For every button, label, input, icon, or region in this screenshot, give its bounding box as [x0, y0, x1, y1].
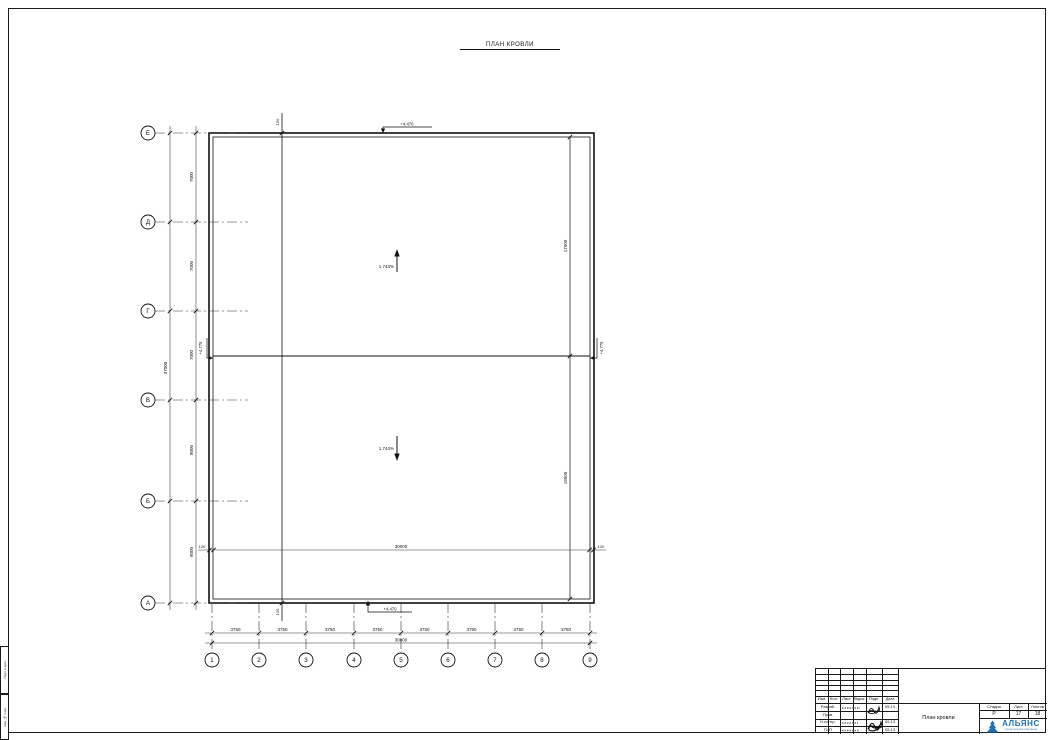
- elevation-label-top: +4.470: [401, 122, 415, 127]
- dim-text-total: 37000: [163, 361, 168, 374]
- axis-label: 4: [352, 657, 356, 664]
- margin-stamp-label: Инв. № подл.: [3, 707, 7, 726]
- dim-text: 8000: [189, 444, 194, 455]
- slope-label-upper: 1.743%: [379, 264, 394, 269]
- elevation-arrow-left: [209, 356, 214, 360]
- axis-label: 1: [210, 657, 214, 664]
- slope-arrowhead-down: [394, 454, 399, 462]
- left-dimension-lines: [170, 126, 196, 610]
- axis-label: Е: [146, 130, 150, 137]
- elevation-arrow-right: [590, 356, 595, 360]
- dim-text: 120: [275, 608, 280, 615]
- axis-label: 3: [304, 657, 308, 664]
- signature-scribble: [868, 722, 882, 731]
- building-outline-inner: [213, 137, 590, 599]
- column-axis-lines: [212, 603, 590, 652]
- dim-text: 7000: [189, 171, 194, 182]
- dim-text: 120: [598, 544, 605, 549]
- dim-text: 3750: [230, 627, 241, 632]
- dim-text: 3750: [419, 627, 430, 632]
- left-dim-ticks: [168, 131, 198, 605]
- margin-stamp-lower: Инв. № подл.: [0, 694, 9, 740]
- elevation-leader-top: [383, 127, 432, 133]
- dim-text: 7000: [189, 260, 194, 271]
- signature-scribble: [868, 707, 880, 714]
- logo-triangle-icon: [986, 720, 999, 733]
- row-axis-lines: [155, 133, 248, 603]
- tb-doc-title: План кровли: [898, 703, 979, 734]
- elevation-leader-left: [207, 338, 213, 358]
- dim-text: 17500: [563, 239, 568, 252]
- tb-sheets-label: Листов: [1028, 703, 1047, 710]
- dim-text: 3750: [513, 627, 524, 632]
- margin-stamp-label: Подп. и дата: [3, 661, 7, 679]
- axis-label: В: [146, 397, 150, 404]
- axis-label: 7: [493, 657, 497, 664]
- drawing-sheet: ПЛАН КРОВЛИ Е Д Г: [0, 0, 1053, 740]
- dim-text: 30000: [395, 544, 408, 549]
- axis-label: 9: [588, 657, 592, 664]
- company-logo: АЛЬЯНС строительная компания: [979, 718, 1047, 734]
- slope-arrowhead-up: [394, 249, 399, 257]
- name-text-illegible: [842, 708, 860, 731]
- dim-text: 19500: [563, 471, 568, 484]
- dim-text: 3750: [561, 627, 572, 632]
- building-outline-outer: [209, 133, 594, 603]
- axis-label: 6: [446, 657, 450, 664]
- tb-sheet-label: Лист: [1009, 703, 1028, 710]
- axis-label: 2: [257, 657, 261, 664]
- axis-label: Б: [146, 498, 150, 505]
- dim-text: 120: [199, 544, 206, 549]
- dim-text: 7000: [189, 349, 194, 360]
- dim-text: 3750: [466, 627, 477, 632]
- slope-label-lower: 1.744%: [379, 446, 394, 451]
- company-subtitle: строительная компания: [1005, 729, 1038, 732]
- dim-text: 3750: [325, 627, 336, 632]
- elevation-label-bottom: +4.470: [384, 607, 398, 612]
- dim-text-total: 30000: [395, 638, 408, 643]
- dim-text: 8000: [189, 546, 194, 557]
- roof-plan-drawing: Е Д Г В Б А 7000 7000 7000 8000 8000 370…: [0, 0, 1053, 740]
- margin-stamp-upper: Подп. и дата: [0, 646, 9, 694]
- elevation-label-ridge-right: +4.775: [599, 341, 604, 355]
- dim-text: 120: [275, 118, 280, 125]
- tb-sheets-value: 18: [1028, 710, 1047, 718]
- axis-label: 5: [399, 657, 403, 664]
- dim-text: 3750: [372, 627, 383, 632]
- elevation-label-ridge-left: +4.775: [198, 341, 203, 355]
- title-block: Изм. Кол. Лист №док. Подп. Дата Разраб. …: [815, 668, 1046, 733]
- tb-sheet-value: 17: [1009, 710, 1028, 718]
- dim-text: 3750: [277, 627, 288, 632]
- axis-label: 8: [540, 657, 544, 664]
- tb-stage-label: Стадия: [979, 703, 1009, 710]
- tb-stage-value: Р: [979, 710, 1009, 718]
